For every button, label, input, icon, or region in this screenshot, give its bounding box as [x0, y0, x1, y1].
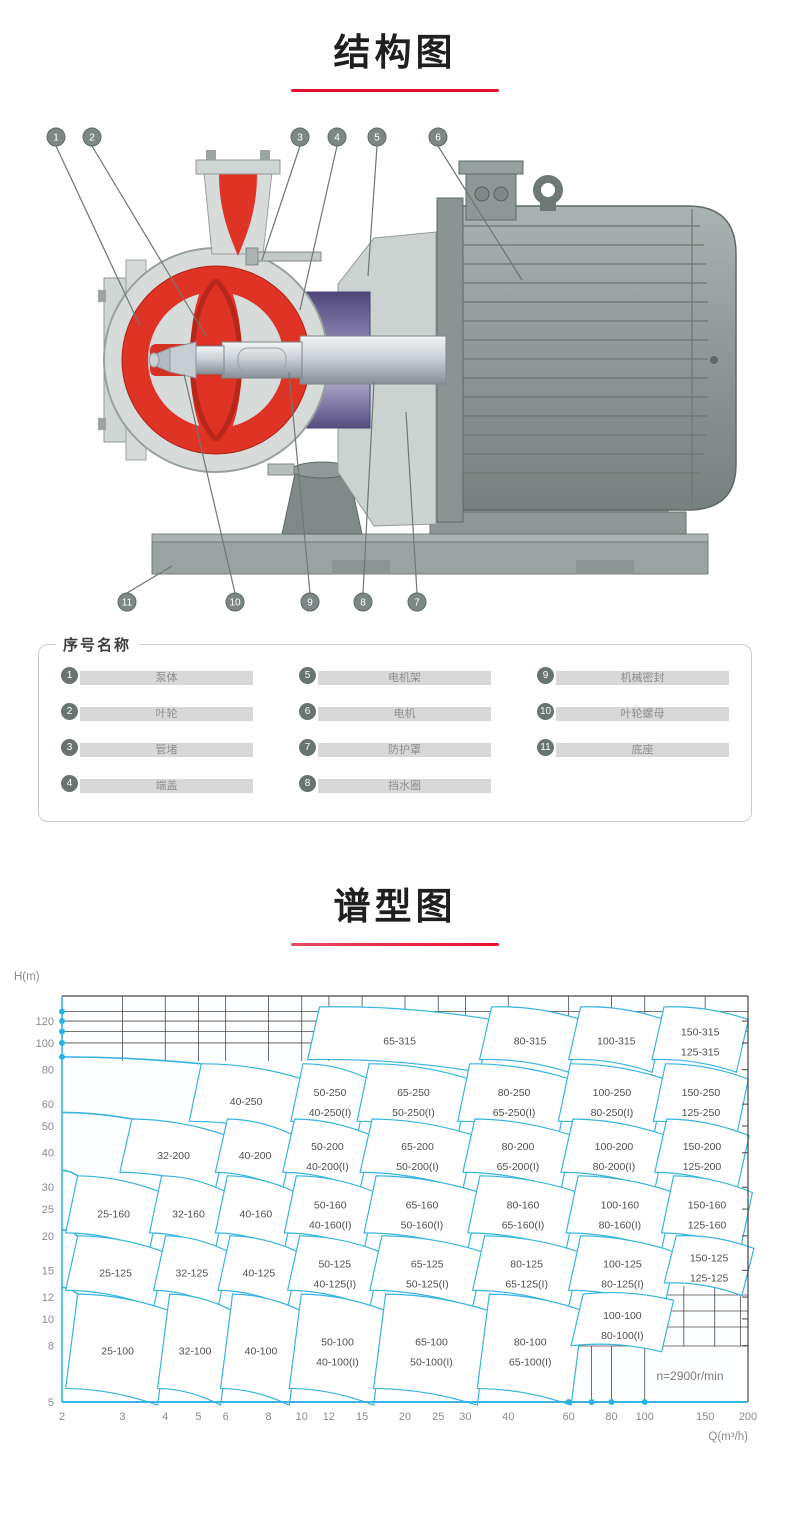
part-number-badge: 8 [299, 775, 316, 792]
region-label: 50-160(I) [401, 1220, 444, 1232]
callout-number-5: 5 [374, 133, 380, 144]
region-label: 100-250 [593, 1087, 632, 1099]
x-tick-label: 25 [432, 1411, 444, 1423]
part-name-label: 泵体 [80, 671, 253, 685]
y-axis-dot [59, 1054, 65, 1060]
parts-column-3: 9机械密封10叶轮螺母11底座 [537, 671, 729, 796]
region-label: 40-250 [230, 1096, 263, 1108]
callout-number-7: 7 [414, 598, 420, 609]
region-label: 65-250(I) [493, 1107, 536, 1119]
structure-title: 结构图 [0, 22, 790, 76]
part-name-label: 管堵 [80, 743, 253, 757]
part-item: 4端盖 [61, 779, 253, 796]
page: { "colors": { "accent_red": "#e5102e", "… [0, 0, 790, 1520]
pump-shaft [149, 336, 446, 384]
region-label: 125-250 [682, 1107, 721, 1119]
y-tick-label: 80 [42, 1065, 54, 1077]
region-label: 100-160 [601, 1200, 640, 1212]
parts-column-2: 5电机架6电机7防护罩8挡水圈 [299, 671, 491, 796]
region-label: 50-250 [314, 1087, 347, 1099]
region-label: 50-100(I) [410, 1357, 453, 1369]
part-number-badge: 1 [61, 667, 78, 684]
region-label: 25-125 [99, 1267, 132, 1279]
region-label: 50-250(I) [392, 1107, 435, 1119]
y-tick-label: 120 [36, 1016, 54, 1028]
x-tick-label: 40 [502, 1411, 514, 1423]
x-axis-dot [589, 1399, 595, 1405]
part-name-label: 机械密封 [556, 671, 729, 685]
region-label: 50-100 [321, 1337, 354, 1349]
region-label: 150-200 [683, 1141, 722, 1153]
region-label: 50-125 [318, 1258, 351, 1270]
region-label: 40-100 [245, 1346, 278, 1358]
region-label: 80-200(I) [593, 1161, 636, 1173]
region-label: 150-160 [688, 1200, 727, 1212]
region-label: 50-200(I) [396, 1161, 439, 1173]
part-item: 5电机架 [299, 671, 491, 688]
part-item: 11底座 [537, 743, 729, 760]
region-label: 80-100(I) [601, 1330, 644, 1342]
region-label: 80-160 [507, 1200, 540, 1212]
callout-number-1: 1 [53, 133, 59, 144]
x-tick-label: 100 [636, 1411, 654, 1423]
x-tick-label: 8 [265, 1411, 271, 1423]
y-tick-label: 10 [42, 1314, 54, 1326]
x-tick-label: 12 [323, 1411, 335, 1423]
x-axis-dot [609, 1399, 615, 1405]
y-tick-label: 50 [42, 1121, 54, 1133]
part-number-badge: 10 [537, 703, 554, 720]
pump-base [152, 534, 708, 574]
region-label: 40-160(I) [309, 1220, 352, 1232]
region-label: 80-125 [510, 1258, 543, 1270]
callout-number-11: 11 [122, 598, 133, 609]
terminal-box [459, 161, 523, 220]
region-label: 100-315 [597, 1036, 636, 1048]
region-label: 25-100 [101, 1346, 134, 1358]
part-number-badge: 11 [537, 739, 554, 756]
parts-column-1: 1泵体2叶轮3管堵4端盖 [61, 671, 253, 796]
y-tick-label: 12 [42, 1292, 54, 1304]
x-tick-label: 80 [605, 1411, 617, 1423]
part-number-badge: 5 [299, 667, 316, 684]
part-item: 7防护罩 [299, 743, 491, 760]
x-axis-title: Q(m³/h) [708, 1431, 748, 1443]
pump-model-region [374, 1294, 490, 1405]
part-number-badge: 9 [537, 667, 554, 684]
part-number-badge: 6 [299, 703, 316, 720]
part-item: 3管堵 [61, 743, 253, 760]
part-number-badge: 2 [61, 703, 78, 720]
x-tick-label: 3 [119, 1411, 125, 1423]
y-tick-label: 60 [42, 1099, 54, 1111]
part-item: 2叶轮 [61, 707, 253, 724]
region-label: 40-125(I) [313, 1278, 356, 1290]
region-label: 32-125 [175, 1267, 208, 1279]
part-name-label: 电机架 [318, 671, 491, 685]
region-label: 50-160 [314, 1200, 347, 1212]
region-label: 150-125 [690, 1253, 729, 1265]
parts-grid: 1泵体2叶轮3管堵4端盖 5电机架6电机7防护罩8挡水圈 9机械密封10叶轮螺母… [61, 671, 729, 796]
region-label: 150-315 [681, 1027, 720, 1039]
structure-section-header: 结构图 [0, 0, 790, 92]
region-label: 65-200 [401, 1141, 434, 1153]
region-label: 65-125(I) [505, 1278, 548, 1290]
chart-title: 谱型图 [0, 876, 790, 930]
structure-title-underline [291, 89, 499, 92]
region-label: 125-160 [688, 1220, 727, 1232]
pump-model-region [289, 1294, 385, 1405]
callout-number-8: 8 [360, 598, 366, 609]
pump-casing [98, 150, 328, 475]
region-label: 50-200 [311, 1141, 344, 1153]
callout-leader-line [300, 146, 337, 310]
x-tick-label: 15 [356, 1411, 368, 1423]
region-label: 100-100 [603, 1310, 642, 1322]
region-label: 80-315 [514, 1036, 547, 1048]
x-axis-dot [642, 1399, 648, 1405]
callout-number-4: 4 [334, 133, 340, 144]
region-label: 40-250(I) [309, 1107, 352, 1119]
motor-body [459, 206, 736, 510]
region-label: 65-100 [415, 1337, 448, 1349]
part-name-label: 底座 [556, 743, 729, 757]
y-axis-dot [59, 1028, 65, 1034]
x-tick-label: 20 [399, 1411, 411, 1423]
region-label: 65-125 [411, 1258, 444, 1270]
y-tick-label: 30 [42, 1182, 54, 1194]
y-tick-label: 20 [42, 1231, 54, 1243]
callout-number-2: 2 [89, 133, 95, 144]
parts-list-panel: 序号名称 1泵体2叶轮3管堵4端盖 5电机架6电机7防护罩8挡水圈 9机械密封1… [38, 644, 752, 822]
region-label: 80-250 [498, 1087, 531, 1099]
region-label: 32-100 [179, 1346, 212, 1358]
region-label: 65-200(I) [497, 1161, 540, 1173]
y-tick-label: 5 [48, 1397, 54, 1409]
x-tick-label: 200 [739, 1411, 757, 1423]
region-label: 65-100(I) [509, 1357, 552, 1369]
part-number-badge: 3 [61, 739, 78, 756]
part-name-label: 电机 [318, 707, 491, 721]
speed-note: n=2900r/min [656, 1369, 723, 1383]
callout-number-9: 9 [307, 598, 313, 609]
x-tick-label: 60 [563, 1411, 575, 1423]
y-axis-dot [59, 1040, 65, 1046]
y-axis-dot [59, 1018, 65, 1024]
y-tick-label: 15 [42, 1265, 54, 1277]
region-label: 125-315 [681, 1047, 720, 1059]
part-item: 8挡水圈 [299, 779, 491, 796]
y-tick-label: 40 [42, 1148, 54, 1160]
y-axis-dot [59, 1008, 65, 1014]
region-label: 40-125 [243, 1267, 276, 1279]
pump-model-region [477, 1294, 583, 1405]
region-label: 40-100(I) [316, 1357, 359, 1369]
part-name-label: 叶轮螺母 [556, 707, 729, 721]
y-axis-title: H(m) [14, 971, 40, 983]
region-label: 32-200 [157, 1150, 190, 1162]
y-tick-label: 100 [36, 1038, 54, 1050]
region-label: 125-200 [683, 1161, 722, 1173]
x-tick-label: 6 [223, 1411, 229, 1423]
casing-bolt [246, 248, 321, 265]
y-tick-label: 25 [42, 1204, 54, 1216]
pump-model-region [571, 1293, 674, 1352]
parts-legend: 序号名称 [55, 634, 139, 655]
x-tick-label: 150 [696, 1411, 714, 1423]
region-label: 65-250 [397, 1087, 430, 1099]
part-item: 9机械密封 [537, 671, 729, 688]
region-label: 80-100 [514, 1337, 547, 1349]
callout-number-3: 3 [297, 133, 303, 144]
part-item: 10叶轮螺母 [537, 707, 729, 724]
part-name-label: 叶轮 [80, 707, 253, 721]
pump-selection-chart: 65-31580-315100-315150-315125-31540-2505… [0, 954, 790, 1454]
pump-structure-figure: 1234561110987 [0, 114, 790, 634]
impeller-nut [170, 342, 196, 378]
part-name-label: 防护罩 [318, 743, 491, 757]
part-number-badge: 4 [61, 775, 78, 792]
region-label: 50-125(I) [406, 1278, 449, 1290]
x-axis-dot [566, 1399, 572, 1405]
region-label: 32-160 [172, 1209, 205, 1221]
region-label: 40-200(I) [306, 1161, 349, 1173]
part-name-label: 端盖 [80, 779, 253, 793]
part-number-badge: 7 [299, 739, 316, 756]
chart-title-underline [291, 943, 499, 946]
region-label: 150-250 [682, 1087, 721, 1099]
chart-section-header: 谱型图 [0, 854, 790, 946]
region-label: 80-200 [502, 1141, 535, 1153]
x-tick-label: 30 [459, 1411, 471, 1423]
region-label: 100-125 [603, 1258, 642, 1270]
region-label: 80-250(I) [591, 1107, 634, 1119]
region-label: 80-160(I) [599, 1220, 642, 1232]
part-item: 6电机 [299, 707, 491, 724]
region-label: 65-315 [383, 1036, 416, 1048]
y-tick-label: 8 [48, 1341, 54, 1353]
lifting-eye [537, 179, 559, 211]
x-tick-label: 5 [195, 1411, 201, 1423]
region-label: 40-200 [239, 1150, 272, 1162]
part-name-label: 挡水圈 [318, 779, 491, 793]
callout-number-10: 10 [229, 598, 241, 609]
callout-number-6: 6 [435, 133, 441, 144]
region-label: 65-160 [406, 1200, 439, 1212]
part-item: 1泵体 [61, 671, 253, 688]
region-label: 80-125(I) [601, 1278, 644, 1290]
x-tick-label: 2 [59, 1411, 65, 1423]
region-label: 125-125 [690, 1273, 729, 1285]
region-label: 65-160(I) [502, 1220, 545, 1232]
region-label: 100-200 [595, 1141, 634, 1153]
region-label: 25-160 [97, 1209, 130, 1221]
x-tick-label: 10 [296, 1411, 308, 1423]
x-tick-label: 4 [162, 1411, 168, 1423]
region-label: 40-160 [240, 1209, 273, 1221]
callout-leader-line [127, 566, 172, 593]
